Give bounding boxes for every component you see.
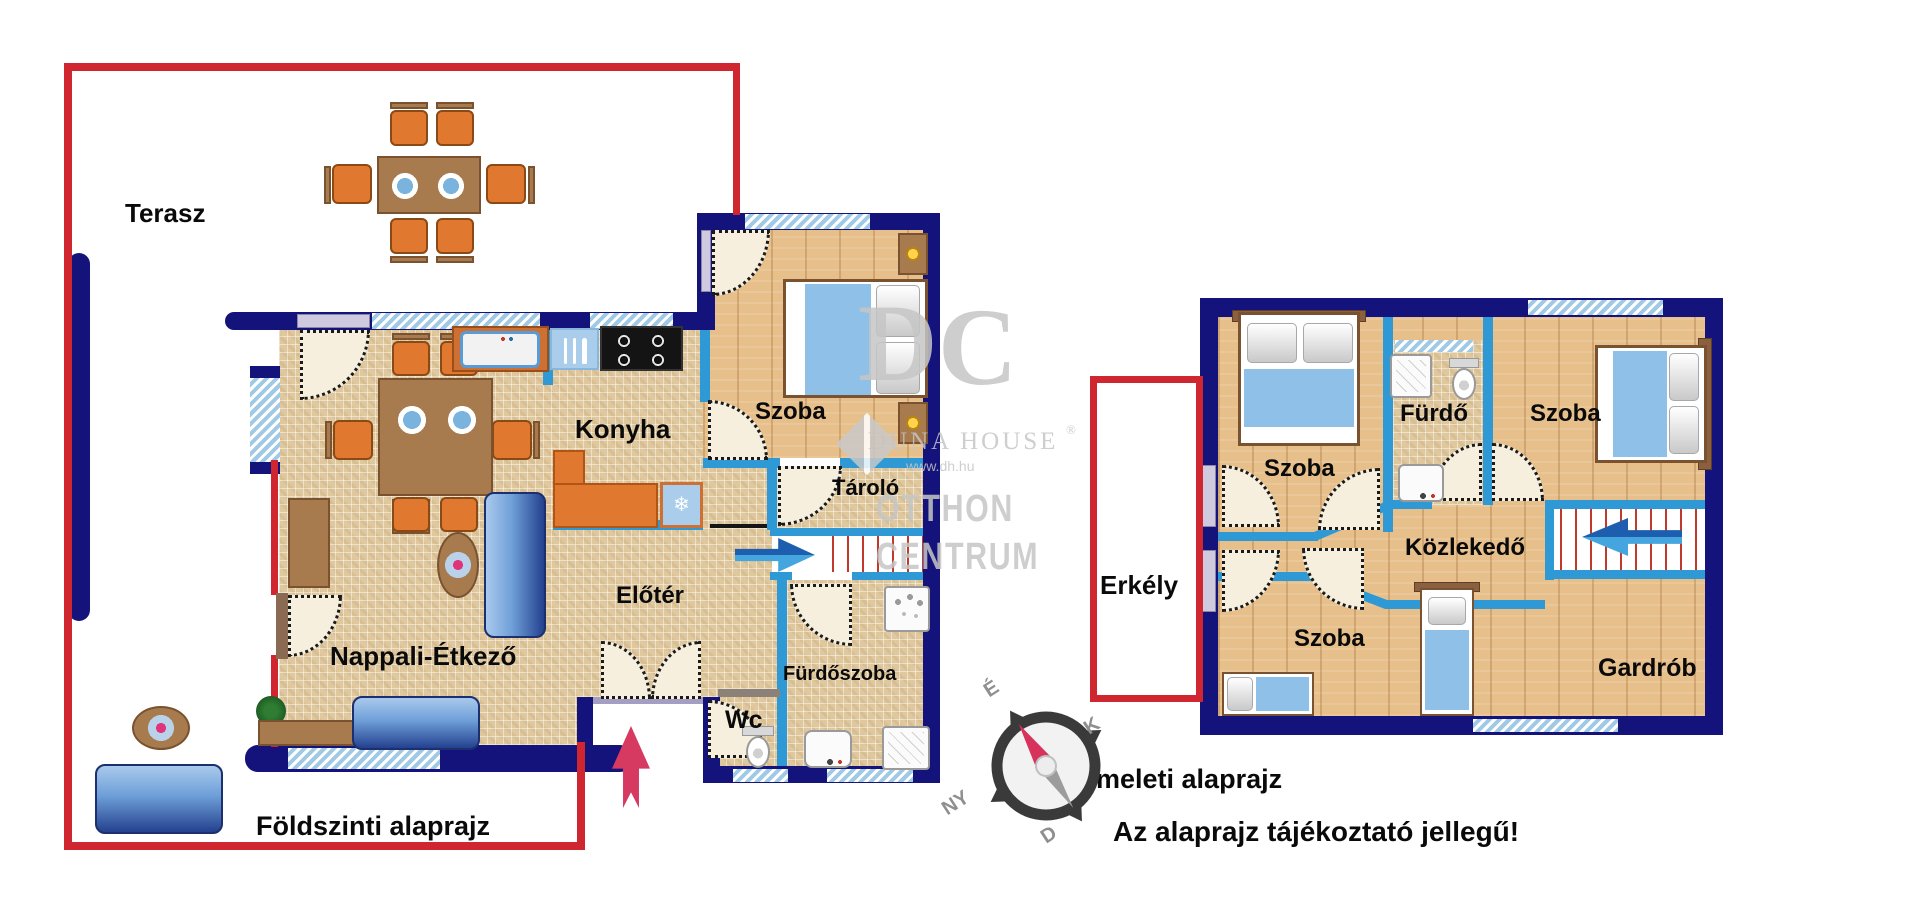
window-bathroom [827, 769, 913, 782]
ground-floor-caption: Földszinti alaprajz [256, 811, 490, 842]
wc-lintel [718, 689, 780, 697]
kitchen-cutlery-drawer [550, 328, 599, 370]
wall-entry-left [577, 697, 593, 747]
entry-outside-patch [593, 704, 703, 745]
single-bed-gardrob [1420, 588, 1474, 716]
terrace-sofa [95, 764, 223, 834]
single-bed-upper-left [1222, 672, 1314, 716]
upper-bath-internal-window [1395, 340, 1473, 352]
bathroom-sink-icon [804, 730, 852, 768]
dining-chair-back [325, 421, 332, 459]
upper-toilet-tank [1449, 358, 1479, 368]
bed-pillow [1303, 323, 1353, 363]
terrace-chair-back [390, 102, 428, 109]
dining-table [378, 378, 493, 496]
terrace-chair-back [436, 256, 474, 263]
bed-pillow [1428, 597, 1466, 625]
cooktop [600, 326, 683, 371]
terrace-chair-back [436, 102, 474, 109]
bed-pillow [1669, 406, 1699, 454]
snowflake-glyph: ❄ [673, 494, 690, 516]
bed-blanket [1425, 630, 1469, 710]
upper-wall-szoba1-bottom [1218, 532, 1318, 541]
kitchen-sink [460, 331, 540, 368]
living-sofa-vertical [484, 492, 546, 638]
nightstand [898, 233, 928, 275]
shower-spray-lines [1396, 360, 1426, 392]
terrace-chair [436, 110, 474, 146]
room-label-furdoszoba: Fürdőszoba [783, 663, 896, 686]
bed-blanket [1613, 351, 1667, 457]
terrace-outline-top [64, 63, 740, 71]
cutlery-icon [573, 338, 576, 364]
room-label-nappali: Nappali-Étkező [330, 641, 516, 672]
room-label-szoba-ground: Szoba [755, 398, 826, 426]
terrace-outline-right-top [733, 63, 740, 215]
watermark: D C DUNA HOUSE ® www.dh.hu OTTHON CENTRU… [840, 270, 1100, 580]
terrace-chair [332, 164, 372, 204]
wall-storage-left [767, 466, 777, 530]
watermark-otthon: OTTHON [876, 488, 1014, 531]
shower-icon [882, 726, 930, 770]
room-label-gardrob: Gardrób [1598, 654, 1697, 683]
cutlery-icon [564, 338, 567, 364]
door-leaf-bedroom [701, 230, 711, 292]
wall-stairs-bottom-left [770, 572, 792, 580]
room-label-furdo: Fürdő [1400, 400, 1468, 428]
terrace-boundary-mid-1 [271, 460, 278, 595]
terrace-chair [486, 164, 526, 204]
bed-blanket [1256, 677, 1309, 711]
dining-chair [392, 497, 430, 532]
double-bed-upper-right [1595, 345, 1707, 463]
wall-kitchen-bedroom [700, 330, 710, 402]
terrace-chair-back [324, 166, 331, 204]
window-wc [733, 769, 788, 782]
terrace-chair [436, 218, 474, 254]
dining-chair [333, 420, 373, 460]
compass-west-label: NY [938, 786, 974, 820]
shower-spray-lines [888, 732, 924, 764]
kitchen-counter-horizontal [553, 483, 658, 528]
compass-north-label: É [980, 676, 1004, 703]
dining-chair [492, 420, 532, 460]
balcony-door-leaf-1 [1202, 465, 1216, 527]
watermark-centrum: CENTRUM [876, 536, 1039, 579]
washing-machine-icon [884, 586, 930, 632]
upper-wall-stairs-top [1552, 500, 1715, 509]
upper-toilet-icon [1452, 368, 1476, 400]
room-label-terasz: Terasz [125, 198, 205, 229]
toilet-icon [746, 736, 770, 768]
watermark-monogram-d: D [858, 280, 937, 407]
room-label-erkely: Erkély [1100, 570, 1178, 601]
floor-plan-image: ❄ Terasz Konyha Szoba Tároló Előtér Napp… [0, 0, 1920, 901]
window-bottom [288, 748, 440, 769]
bed-blanket [1244, 369, 1354, 427]
window-bedroom [745, 214, 870, 229]
room-label-konyha: Konyha [575, 414, 670, 445]
upper-wall-bottom [1200, 716, 1723, 735]
terrace-chair [390, 218, 428, 254]
dining-chair-back [533, 421, 540, 459]
door-leaf-living-terrace [276, 593, 288, 659]
balcony-outline [1090, 376, 1203, 702]
disclaimer-text: Az alaprajz tájékoztató jellegű! [1113, 816, 1519, 848]
ground-corridor-tile-floor [700, 458, 777, 697]
room-label-wc: Wc [725, 706, 763, 735]
dining-chair [392, 341, 430, 376]
terrace-dining-table [377, 156, 481, 214]
double-bed-upper-left [1238, 312, 1360, 446]
cutlery-icon [582, 338, 587, 364]
terrace-outline-left [64, 63, 72, 850]
upper-sink-icon [1398, 464, 1444, 502]
bed-pillow [1669, 353, 1699, 401]
balcony-door-leaf-2 [1202, 550, 1216, 612]
terrace-chair-back [390, 256, 428, 263]
room-label-eloter: Előtér [616, 582, 684, 610]
upper-window-bottom [1473, 719, 1618, 732]
terrace-side-table [132, 706, 190, 750]
room-label-szoba-upper-right: Szoba [1530, 400, 1601, 428]
room-label-szoba-upper-left: Szoba [1264, 455, 1335, 483]
watermark-registered: ® [1066, 422, 1076, 438]
terrace-outline-right-low [577, 742, 585, 846]
living-sofa-horizontal [352, 696, 480, 750]
terrace-chair-back [528, 166, 535, 204]
sideboard [288, 498, 330, 588]
room-label-kozlekedo: Közlekedő [1405, 534, 1525, 562]
upper-shower-icon [1390, 354, 1432, 398]
watermark-monogram-c: C [938, 284, 1017, 411]
watermark-brand: DUNA HOUSE [868, 428, 1058, 456]
terrace-door-leaf [297, 314, 370, 328]
fridge-icon: ❄ [660, 482, 703, 528]
terrace-outline-bottom [64, 842, 585, 850]
upper-window-top [1528, 300, 1663, 315]
room-label-szoba-lower: Szoba [1294, 625, 1365, 653]
watermark-url: www.dh.hu [906, 458, 974, 474]
bed-pillow [1227, 677, 1253, 711]
upper-wall-stairs-left [1545, 500, 1554, 580]
coffee-table [437, 532, 479, 598]
dining-chair [440, 497, 478, 532]
window-left [250, 378, 280, 464]
upper-wall-stairs-bottom [1554, 570, 1705, 579]
dining-chair-back [392, 333, 430, 340]
bed-pillow [1247, 323, 1297, 363]
opening-line [710, 524, 772, 528]
terrace-chair [390, 110, 428, 146]
